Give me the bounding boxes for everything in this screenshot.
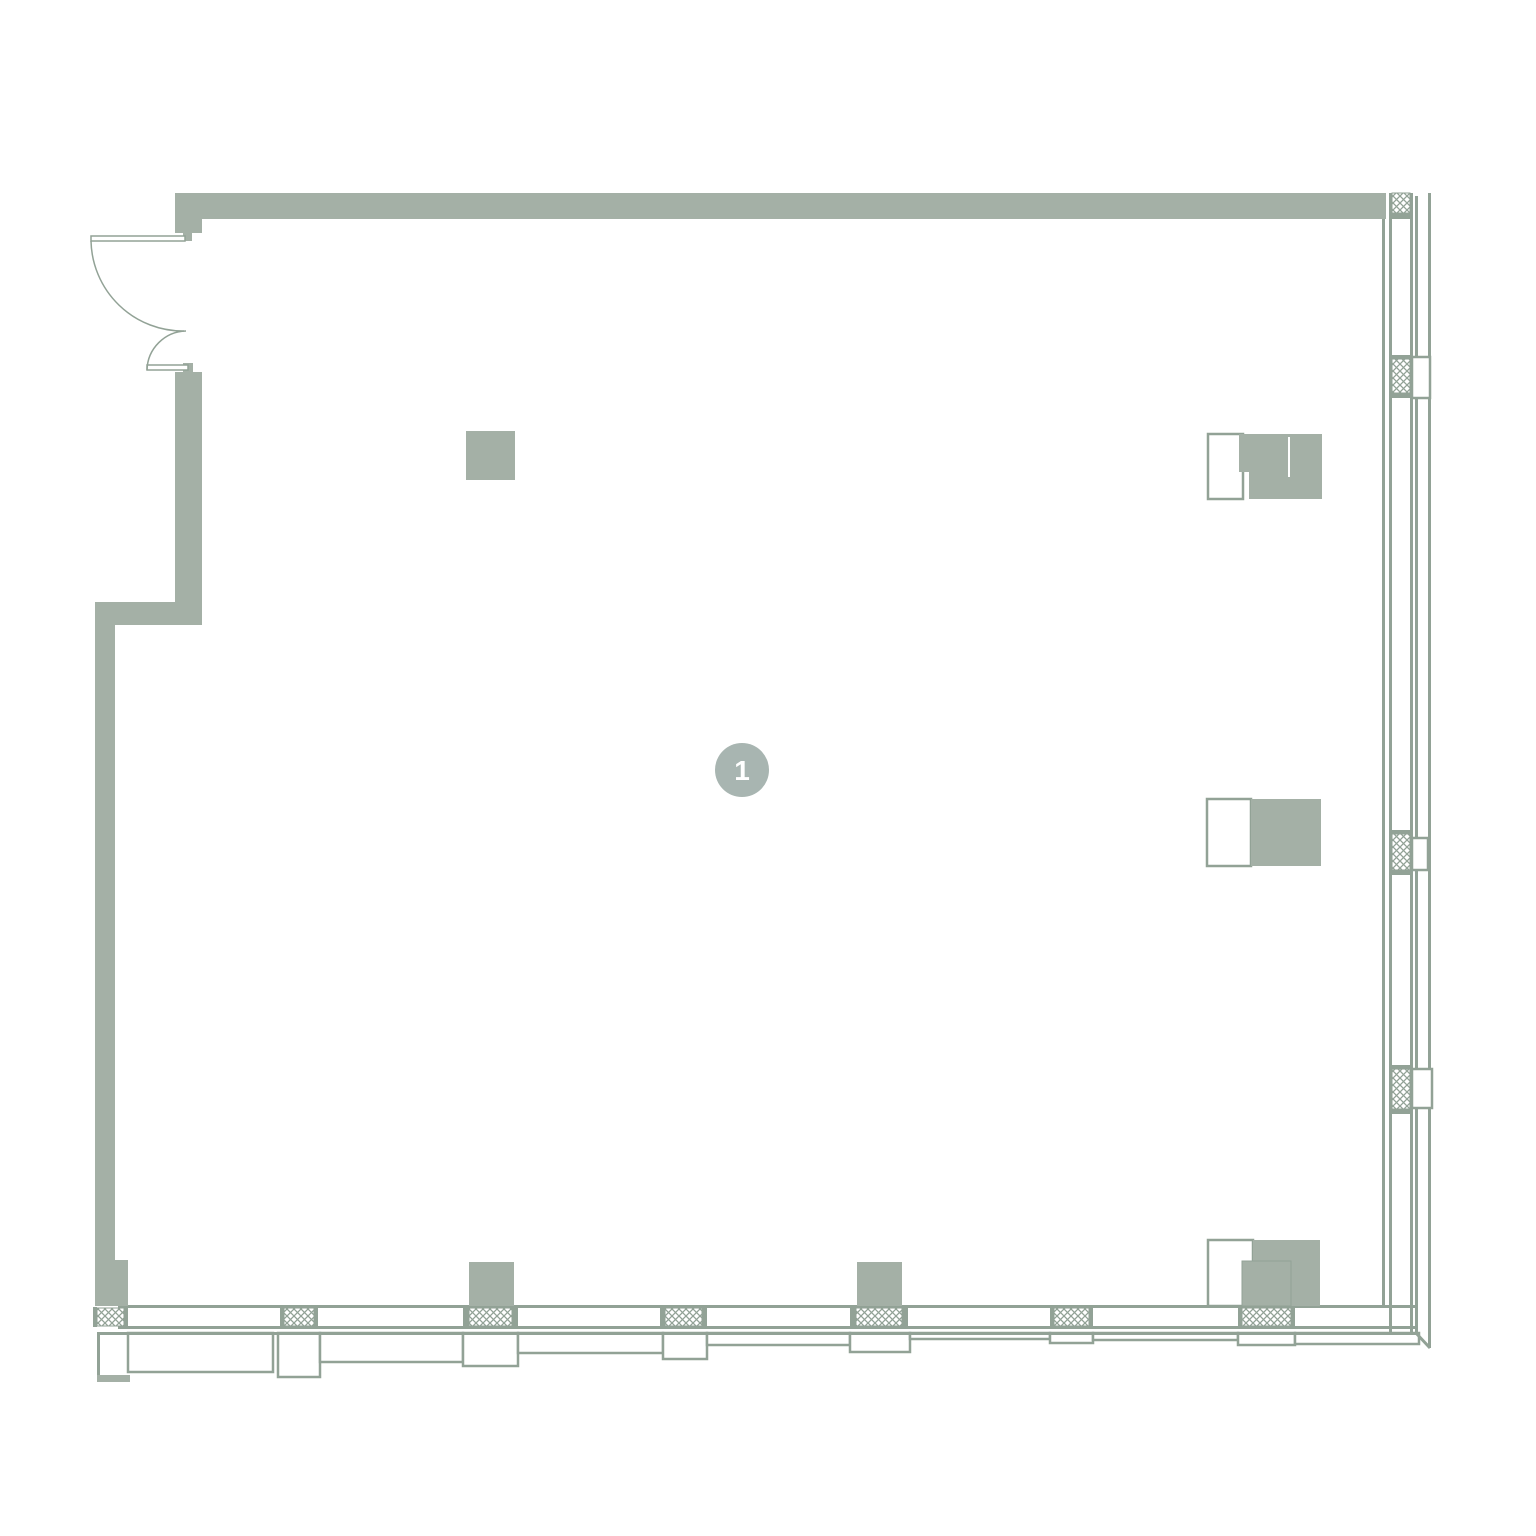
left-wall-lower — [95, 625, 115, 1302]
bottom-mullion-cap — [1291, 1307, 1295, 1327]
right-mullion-bracket — [1412, 838, 1428, 870]
right-mullion-hatch — [1392, 1069, 1410, 1109]
cabinet-top-fill-b — [1249, 472, 1322, 499]
floor-plan-drawing: 1 — [0, 0, 1536, 1536]
right-mullion-cap — [1392, 870, 1410, 875]
right-mullion-hatch — [1392, 193, 1410, 213]
cabinet-top-outline — [1208, 434, 1243, 499]
sill-panel-3 — [518, 1333, 663, 1353]
top-wall-end-block — [175, 193, 202, 233]
column-3 — [857, 1262, 902, 1306]
bottom-mullion-hatch — [856, 1308, 902, 1326]
bottom-mullion-cap — [93, 1307, 97, 1327]
bottom-mullion-cap — [1050, 1307, 1054, 1327]
left-wall-base — [95, 1260, 128, 1306]
bottom-mullion-cap — [660, 1307, 665, 1327]
cabinet-mid-fill — [1251, 799, 1321, 866]
right-mullion-cap — [1392, 830, 1410, 834]
unit-marker[interactable]: 1 — [715, 743, 769, 797]
sill-mullion-box-2 — [463, 1333, 518, 1366]
bottom-mullion-hatch — [97, 1308, 124, 1326]
bottom-mullion-cap — [702, 1307, 707, 1327]
right-mullion-hatch — [1392, 834, 1410, 870]
right-mullion-cap — [1392, 213, 1410, 219]
bottom-mullion-cap — [850, 1307, 856, 1327]
column-1 — [466, 431, 515, 480]
bottom-mullion-hatch — [1054, 1308, 1089, 1326]
right-mullion-cap — [1392, 393, 1410, 398]
bottom-mullion-hatch — [469, 1308, 512, 1326]
top-wall — [175, 193, 1386, 219]
door-leaf-bottom — [147, 365, 188, 370]
cabinet-bottom-inner — [1242, 1261, 1291, 1306]
left-wall-upper — [175, 372, 202, 625]
cabinet-top-seam — [1288, 437, 1290, 477]
bottom-mullion-cap — [124, 1307, 128, 1327]
bottom-mullion-hatch — [665, 1308, 702, 1326]
door-swing-bottom — [147, 331, 186, 370]
cabinet-mid-outline — [1207, 799, 1251, 866]
left-base-edge-line — [97, 1333, 100, 1378]
bottom-mullion-cap — [512, 1307, 518, 1327]
right-mullion-cap — [1392, 1065, 1410, 1069]
bottom-mullion-hatch — [1242, 1308, 1291, 1326]
unit-marker-label: 1 — [734, 755, 750, 786]
right-mullion-hatch — [1392, 359, 1410, 393]
right-mullion-bracket — [1412, 1069, 1432, 1108]
sill-mullion-box-1 — [278, 1333, 320, 1377]
bottom-mullion-hatch — [284, 1308, 314, 1326]
sill-mullion-box-3 — [663, 1333, 707, 1359]
door-swing-top — [91, 241, 184, 331]
bottom-mullion-cap — [280, 1307, 284, 1327]
column-2 — [469, 1262, 514, 1306]
floor-plan-canvas: 1 — [0, 0, 1536, 1536]
right-mullion-cap — [1392, 355, 1410, 359]
door-leaf-top — [91, 236, 185, 241]
left-wall-jog — [95, 602, 202, 625]
bottom-mullion-cap — [902, 1307, 908, 1327]
sill-panel-2 — [320, 1333, 463, 1362]
bottom-mullion-cap — [1238, 1307, 1242, 1327]
sill-mullion-box-4 — [850, 1333, 910, 1352]
bottom-mullion-cap — [1089, 1307, 1093, 1327]
right-wall-inner-line — [1382, 219, 1385, 1306]
left-base-step — [97, 1375, 130, 1382]
right-mullion-bracket — [1412, 357, 1430, 398]
cabinet-top-fill-a — [1239, 434, 1322, 472]
sill-panel-1 — [128, 1333, 273, 1372]
bottom-mullion-cap — [463, 1307, 469, 1327]
bottom-window-line-outer — [97, 1332, 1417, 1335]
bottom-mullion-cap — [314, 1307, 318, 1327]
right-mullion-cap — [1392, 1109, 1410, 1114]
